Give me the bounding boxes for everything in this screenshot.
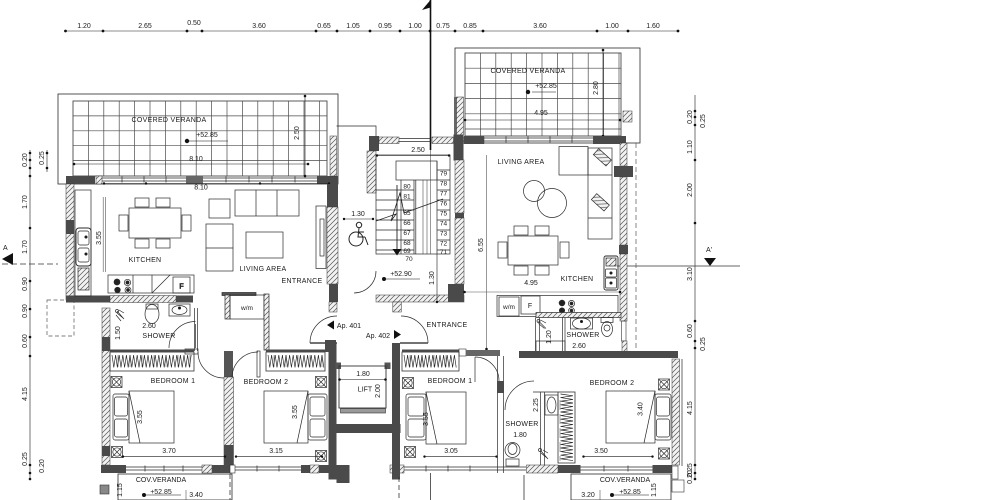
svg-text:Ap. 402: Ap. 402 xyxy=(366,333,390,340)
svg-text:3.55: 3.55 xyxy=(423,412,430,426)
svg-text:3.20: 3.20 xyxy=(581,492,595,499)
svg-text:8.10: 8.10 xyxy=(189,156,203,163)
svg-text:3.40: 3.40 xyxy=(189,492,203,499)
svg-text:80: 80 xyxy=(403,184,411,191)
svg-text:BEDROOM 1: BEDROOM 1 xyxy=(428,378,473,385)
svg-text:1.15: 1.15 xyxy=(651,483,658,497)
svg-text:72: 72 xyxy=(440,241,448,248)
svg-text:F: F xyxy=(179,284,183,291)
svg-text:Ap. 401: Ap. 401 xyxy=(337,323,361,330)
svg-text:3.10: 3.10 xyxy=(687,267,694,281)
svg-text:68: 68 xyxy=(403,240,411,247)
svg-text:2.00: 2.00 xyxy=(375,384,382,398)
svg-text:w/m: w/m xyxy=(240,305,253,312)
svg-text:0.65: 0.65 xyxy=(317,23,331,30)
svg-text:1.00: 1.00 xyxy=(408,23,422,30)
svg-text:3.60: 3.60 xyxy=(252,23,266,30)
svg-text:1.20: 1.20 xyxy=(546,330,553,344)
svg-text:F: F xyxy=(528,303,532,310)
svg-text:3.70: 3.70 xyxy=(162,448,176,455)
svg-text:0.25: 0.25 xyxy=(22,452,29,466)
svg-text:0.20: 0.20 xyxy=(687,470,694,484)
svg-text:2.50: 2.50 xyxy=(411,147,425,154)
svg-text:A: A xyxy=(3,245,8,252)
svg-text:0.60: 0.60 xyxy=(687,324,694,338)
svg-text:0.25: 0.25 xyxy=(700,114,707,128)
svg-text:1.70: 1.70 xyxy=(22,195,29,209)
svg-text:COV.VERANDA: COV.VERANDA xyxy=(136,477,187,484)
svg-text:2.80: 2.80 xyxy=(593,81,600,95)
svg-text:w/m: w/m xyxy=(502,304,515,311)
svg-text:4.95: 4.95 xyxy=(524,280,538,287)
svg-text:0.25: 0.25 xyxy=(700,337,707,351)
svg-text:0.20: 0.20 xyxy=(22,153,29,167)
svg-text:75: 75 xyxy=(440,211,448,218)
svg-text:1.30: 1.30 xyxy=(429,271,436,285)
svg-text:2.60: 2.60 xyxy=(572,343,586,350)
svg-text:KITCHEN: KITCHEN xyxy=(561,276,594,283)
svg-text:BEDROOM 2: BEDROOM 2 xyxy=(590,380,635,387)
svg-text:+52.85: +52.85 xyxy=(196,132,218,139)
svg-text:SHOWER: SHOWER xyxy=(566,332,599,339)
svg-text:COVERED VERANDA: COVERED VERANDA xyxy=(132,117,207,124)
svg-text:2.00: 2.00 xyxy=(687,183,694,197)
svg-text:COVERED VERANDA: COVERED VERANDA xyxy=(491,68,566,75)
svg-text:73: 73 xyxy=(440,231,448,238)
svg-text:3.55: 3.55 xyxy=(137,410,144,424)
svg-text:2.50: 2.50 xyxy=(294,126,301,140)
svg-text:81: 81 xyxy=(403,194,411,201)
svg-text:+52.85: +52.85 xyxy=(535,83,557,90)
svg-text:3.55: 3.55 xyxy=(96,231,103,245)
svg-text:74: 74 xyxy=(440,221,448,228)
svg-text:3.50: 3.50 xyxy=(594,448,608,455)
svg-text:1.15: 1.15 xyxy=(117,483,124,497)
svg-text:2.65: 2.65 xyxy=(138,23,152,30)
svg-text:1.00: 1.00 xyxy=(605,23,619,30)
svg-text:71: 71 xyxy=(440,249,448,256)
svg-text:4.15: 4.15 xyxy=(687,401,694,415)
svg-text:0.90: 0.90 xyxy=(22,277,29,291)
svg-text:4.95: 4.95 xyxy=(534,110,548,117)
svg-text:1.70: 1.70 xyxy=(22,240,29,254)
svg-text:1.30: 1.30 xyxy=(351,211,365,218)
svg-text:0.50: 0.50 xyxy=(187,20,201,27)
svg-text:0.20: 0.20 xyxy=(687,110,694,124)
svg-text:3.40: 3.40 xyxy=(638,402,645,416)
svg-text:2.25: 2.25 xyxy=(533,398,540,412)
svg-text:0.95: 0.95 xyxy=(378,23,392,30)
svg-text:KITCHEN: KITCHEN xyxy=(129,257,162,264)
svg-text:1.50: 1.50 xyxy=(115,326,122,340)
svg-text:77: 77 xyxy=(440,191,448,198)
svg-text:0.75: 0.75 xyxy=(436,23,450,30)
svg-text:ENTRANCE: ENTRANCE xyxy=(282,278,323,285)
svg-text:1.20: 1.20 xyxy=(77,23,91,30)
svg-text:4.15: 4.15 xyxy=(22,387,29,401)
svg-text:LIVING AREA: LIVING AREA xyxy=(498,159,545,166)
svg-text:79: 79 xyxy=(440,171,448,178)
svg-text:1.10: 1.10 xyxy=(687,140,694,154)
svg-text:BEDROOM 1: BEDROOM 1 xyxy=(151,378,196,385)
svg-text:0.90: 0.90 xyxy=(22,304,29,318)
svg-text:66: 66 xyxy=(403,220,411,227)
svg-text:COV.VERANDA: COV.VERANDA xyxy=(600,477,651,484)
svg-text:3.55: 3.55 xyxy=(292,405,299,419)
svg-text:1.80: 1.80 xyxy=(513,432,527,439)
svg-text:LIVING AREA: LIVING AREA xyxy=(240,266,287,273)
svg-text:3.05: 3.05 xyxy=(444,448,458,455)
svg-text:78: 78 xyxy=(440,181,448,188)
svg-text:67: 67 xyxy=(403,230,411,237)
svg-text:LIFT: LIFT xyxy=(358,387,373,394)
svg-text:3.15: 3.15 xyxy=(269,448,283,455)
svg-text:3.60: 3.60 xyxy=(533,23,547,30)
svg-text:0.20: 0.20 xyxy=(39,459,46,473)
svg-text:1.60: 1.60 xyxy=(646,23,660,30)
svg-text:0.60: 0.60 xyxy=(22,334,29,348)
svg-text:1.80: 1.80 xyxy=(356,371,370,378)
svg-text:69: 69 xyxy=(403,248,411,255)
svg-text:0.85: 0.85 xyxy=(463,23,477,30)
svg-text:70: 70 xyxy=(405,256,413,263)
svg-text:2.60: 2.60 xyxy=(142,323,156,330)
svg-text:BEDROOM 2: BEDROOM 2 xyxy=(244,379,289,386)
svg-text:1.05: 1.05 xyxy=(346,23,360,30)
svg-text:8.10: 8.10 xyxy=(194,185,208,192)
svg-text:SHOWER: SHOWER xyxy=(505,421,538,428)
svg-text:ENTRANCE: ENTRANCE xyxy=(427,322,468,329)
svg-text:6.55: 6.55 xyxy=(478,238,485,252)
svg-text:0.25: 0.25 xyxy=(39,151,46,165)
svg-text:A': A' xyxy=(706,247,712,254)
svg-text:76: 76 xyxy=(440,201,448,208)
svg-text:+52.90: +52.90 xyxy=(390,271,412,278)
